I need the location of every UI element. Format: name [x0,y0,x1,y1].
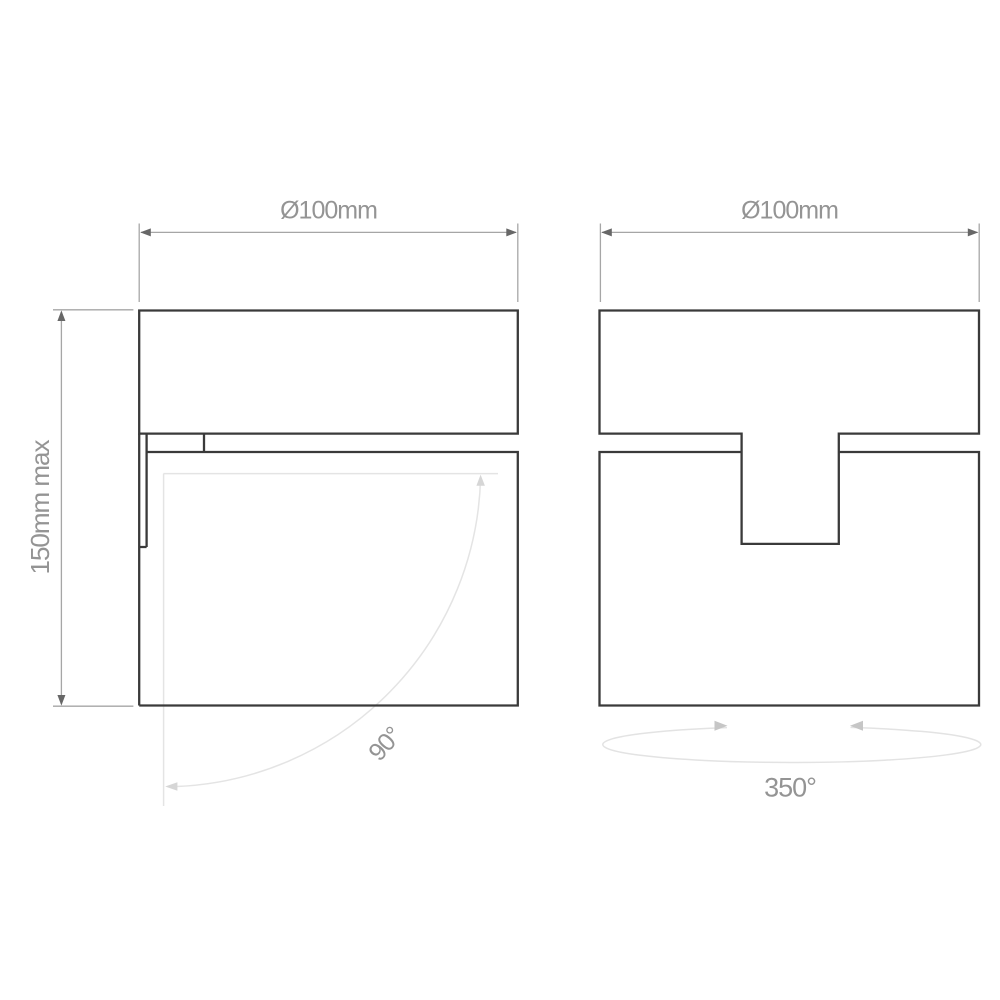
svg-text:150mm max: 150mm max [25,439,55,574]
svg-text:Ø100mm: Ø100mm [741,197,838,225]
svg-text:350°: 350° [764,773,816,803]
svg-text:Ø100mm: Ø100mm [280,197,377,225]
